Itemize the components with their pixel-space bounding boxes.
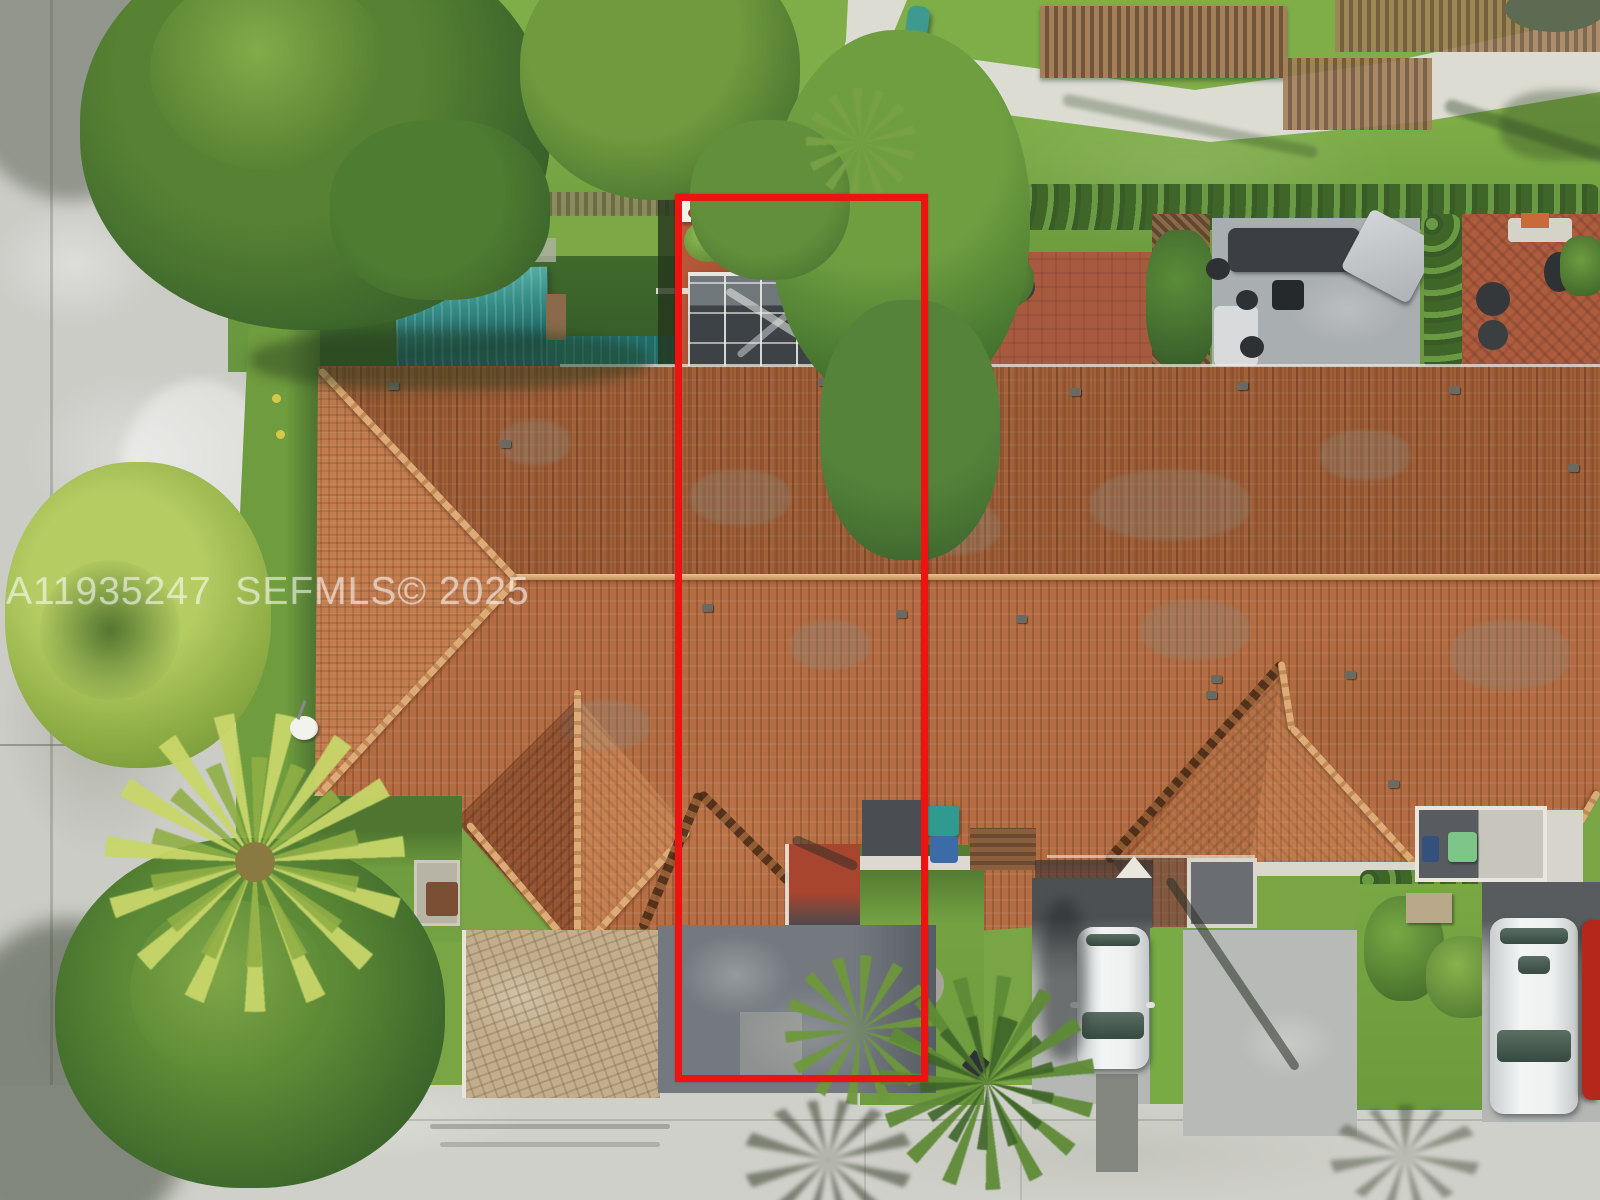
grass-strip-between-driveways xyxy=(1150,928,1183,1104)
roof-vent xyxy=(1388,780,1399,788)
fence-top-1 xyxy=(1040,6,1287,78)
roof-vent xyxy=(1449,386,1460,394)
white-car-1-rear-glass xyxy=(1086,934,1140,946)
tropical-plants-1 xyxy=(1146,230,1216,370)
paver-driveway xyxy=(462,930,660,1098)
tire-mark xyxy=(440,1142,660,1147)
roof-vent xyxy=(1237,382,1248,390)
roof-vent xyxy=(1568,464,1579,472)
white-car-1-windshield xyxy=(1082,1012,1144,1039)
palm-bottomcenter-inner xyxy=(920,1015,1055,1150)
roof-vent xyxy=(1211,675,1222,683)
palm-shadow-street-2 xyxy=(1330,1105,1480,1200)
roof-vent xyxy=(1206,691,1217,699)
yard-light-2 xyxy=(276,430,285,439)
tree-shadow-on-lawn xyxy=(250,330,650,390)
trash-bin-green xyxy=(1448,832,1477,862)
roof-patch xyxy=(1450,620,1570,690)
white-car-1-mirror-right xyxy=(1146,1002,1155,1008)
roof-patch xyxy=(1320,430,1410,480)
fence-panel-right xyxy=(1283,58,1432,130)
bin-navy xyxy=(1422,836,1439,862)
patio3-chair-2 xyxy=(1478,320,1508,350)
roof-vent xyxy=(500,440,511,448)
bin-blue xyxy=(930,836,958,863)
recycle-bin-teal xyxy=(927,806,959,836)
patio2-chair-2 xyxy=(1240,336,1264,358)
apron-dark-pad xyxy=(1096,1074,1138,1172)
roof-patch xyxy=(1140,600,1250,660)
palm-bottomleft-crown xyxy=(235,842,275,882)
aerial-photo-scene: A11935247 SEFMLS© 2025 xyxy=(0,0,1600,1200)
patio3-orange-mat xyxy=(1521,213,1549,228)
right-gravel-patch xyxy=(1547,810,1583,882)
patio2-chair-1 xyxy=(1236,290,1258,310)
utility-box xyxy=(426,882,458,916)
red-car xyxy=(1582,920,1600,1100)
satellite-dish xyxy=(290,716,318,740)
mls-watermark: A11935247 SEFMLS© 2025 xyxy=(6,570,530,614)
white-car-2-windshield xyxy=(1497,1030,1571,1062)
white-car-2-sunroof xyxy=(1518,956,1550,974)
right-lawn-pad xyxy=(1406,893,1452,923)
roof-vent xyxy=(1345,671,1356,679)
hedge-between-patios xyxy=(1424,214,1462,372)
small-palm-top xyxy=(806,88,916,198)
wing-a-ridge xyxy=(574,690,581,955)
roof-vent xyxy=(1016,615,1027,623)
roof-vent xyxy=(1070,388,1081,396)
patio2-fire-table xyxy=(1272,280,1304,310)
subject-property-outline xyxy=(675,194,928,1082)
roof-patch xyxy=(1090,470,1250,540)
wood-fence-panel-entry xyxy=(970,828,1036,870)
patio3-chair-1 xyxy=(1476,282,1510,316)
tree-canopy-topleft-lobe xyxy=(330,120,550,300)
white-car-2-rear-glass xyxy=(1500,928,1568,944)
white-car-2 xyxy=(1490,918,1578,1114)
yard-light-1 xyxy=(272,394,281,403)
lawn-shadow-streak2 xyxy=(1500,90,1600,160)
patio2-sectional-sofa xyxy=(1228,228,1360,272)
patio2-chair-3 xyxy=(1206,258,1230,280)
tire-mark xyxy=(430,1124,670,1129)
patio3-palm-plant xyxy=(1560,236,1600,296)
